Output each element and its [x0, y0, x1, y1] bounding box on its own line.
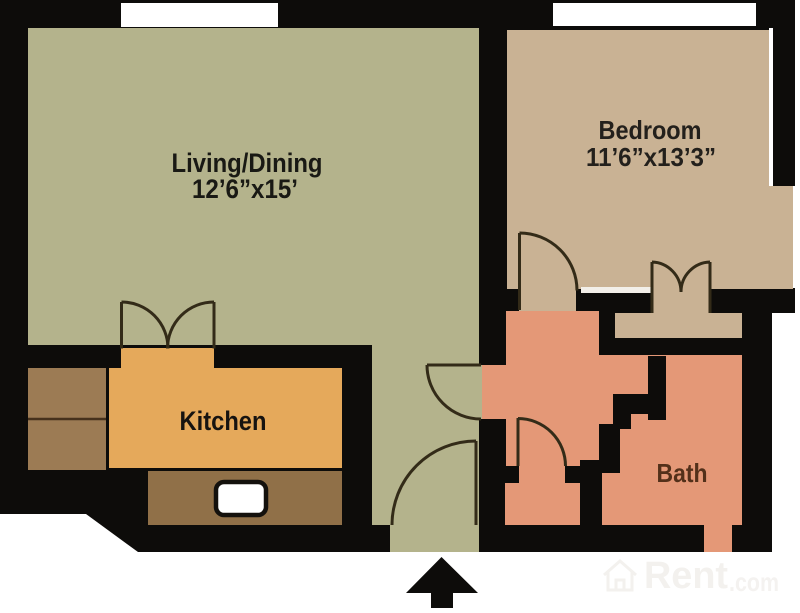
svg-text:.com: .com [729, 567, 779, 597]
svg-text:12’6”x15’: 12’6”x15’ [192, 174, 298, 204]
svg-text:Bedroom: Bedroom [599, 115, 702, 145]
svg-text:Kitchen: Kitchen [180, 406, 267, 436]
svg-text:Rent: Rent [644, 555, 728, 597]
svg-text:11’6”x13’3”: 11’6”x13’3” [586, 142, 716, 172]
svg-text:Bath: Bath [657, 458, 708, 488]
